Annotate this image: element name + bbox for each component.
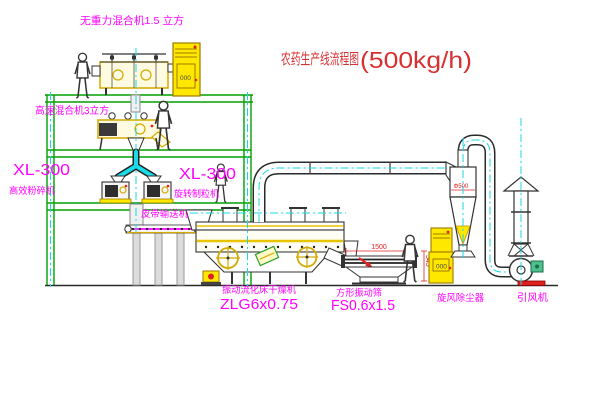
vibrating-screen: 1500 545 [341, 241, 431, 284]
label-granulator-name: 旋转制粒机 [174, 188, 219, 200]
indicator-light-icon [151, 125, 154, 128]
fan-base [518, 281, 545, 286]
label-dryer-model: ZLG6x0.75 [220, 296, 298, 313]
label-high-speed-mixer: 高速混合机3立方 [35, 104, 109, 117]
label-pulverizer-model: XL-300 [13, 162, 70, 179]
fluid-bed-dryer [186, 208, 347, 285]
cabinet1-display: 000 [180, 75, 191, 82]
label-pulverizer-name: 高效粉碎机 [9, 185, 55, 197]
indicator-light-icon [195, 79, 198, 82]
label-gravity-free-mixer: 无重力混合机1.5 立方 [80, 14, 184, 27]
process-flow-diagram: 000 [0, 0, 600, 403]
indicator-light-icon [125, 185, 128, 188]
drawing-title: 农药生产线流程图 (500kg/h) [281, 47, 472, 73]
feed-pump [201, 271, 221, 285]
indicator-light-icon [449, 267, 452, 270]
indicator-light-icon [167, 185, 170, 188]
label-dryer-name: 振动流化床干燥机 [222, 284, 296, 296]
person-figure [75, 53, 90, 98]
cad-process-flow-drawing: 000 [0, 0, 600, 403]
label-belt-conveyor: 皮带输送机 [141, 208, 188, 220]
granulator-right [142, 176, 173, 203]
title-main: 农药生产线流程图 [281, 51, 359, 68]
belt-conveyor [125, 225, 200, 285]
label-screen-model: FS0.6x1.5 [331, 297, 395, 314]
indicator-light-icon [447, 231, 450, 234]
screen-length-dim: 1500 [371, 244, 387, 251]
control-cabinet-1: 000 [173, 43, 200, 96]
cabinet2-display: 000 [436, 264, 447, 271]
label-cyclone: 旋风除尘器 [437, 292, 484, 304]
label-fan: 引风机 [517, 291, 548, 304]
title-capacity: (500kg/h) [360, 47, 472, 73]
cyclone-dia-dim: Φ500 [454, 184, 469, 190]
control-cabinet-2: 000 [429, 228, 453, 283]
granulator-left [100, 176, 131, 203]
label-granulator-model: XL-300 [179, 166, 236, 183]
indicator-light-icon [194, 46, 197, 49]
induced-draft-fan [510, 259, 546, 286]
person-figure [402, 235, 418, 282]
